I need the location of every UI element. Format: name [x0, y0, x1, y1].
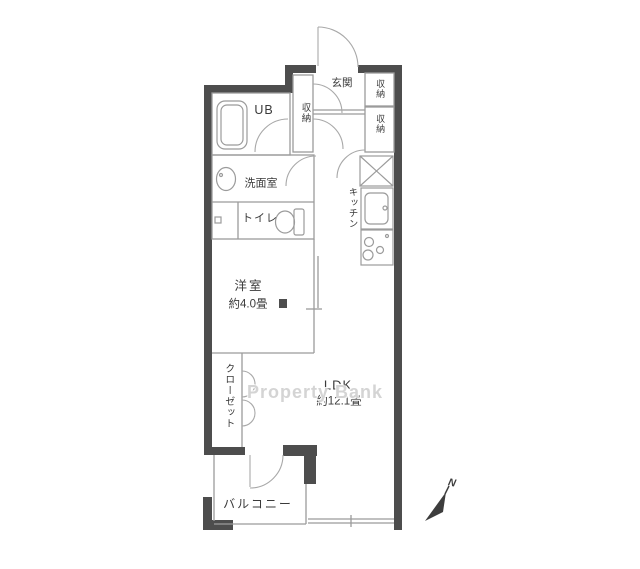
burner-icon-3: [377, 247, 384, 254]
floorplan-canvas: UB 収納 玄関 収納 収納 キッチン 洗面室 トイレ 洋室 約4.0畳 LDK…: [0, 0, 640, 569]
wall-bottom-left: [204, 447, 245, 455]
room-label-washroom: 洗面室: [245, 178, 278, 191]
room-label-hall-storage: 収納: [299, 103, 310, 124]
washbasin-icon: [217, 168, 236, 191]
room-label-storage-upper: 収納: [375, 79, 385, 99]
wall-right: [394, 65, 402, 530]
washbasin-tap-icon: [220, 174, 223, 177]
burner-icon-1: [365, 238, 374, 247]
room-label-entrance: 玄関: [332, 77, 353, 89]
entrance-door-arc: [318, 27, 358, 67]
pillar: [279, 299, 287, 308]
wall-balcony-bottom: [203, 520, 233, 530]
wall-connector: [285, 65, 293, 93]
unit-bath-room: [212, 93, 290, 155]
wall-left: [204, 85, 212, 455]
wall-bottom-center-v: [304, 445, 316, 484]
burner-icon-4: [386, 235, 389, 238]
kitchen-faucet-icon: [383, 206, 387, 210]
north-arrow-icon: [425, 486, 449, 521]
room-label-balcony: バルコニー: [223, 498, 293, 512]
toilet-tank-icon: [294, 209, 304, 235]
north-arrow-head: [425, 492, 446, 521]
unit-bath-door-arc: [255, 119, 288, 152]
wall-top-left-block: [204, 85, 293, 93]
bathtub-inner-icon: [221, 105, 243, 145]
room-size-western-room: 約4.0畳: [229, 298, 268, 311]
watermark-text: Property Bank: [247, 382, 383, 403]
room-label-storage-lower: 収納: [375, 114, 385, 134]
burner-icon-2: [363, 250, 373, 260]
fixtures: [215, 101, 393, 265]
toilet-bowl-icon: [276, 211, 295, 233]
balcony-door-arc: [250, 455, 283, 488]
washer-tap-icon: [215, 217, 221, 223]
door-arcs: [242, 27, 365, 488]
kitchen-sink-icon: [365, 193, 388, 224]
hall-door-arc: [313, 119, 343, 149]
corridor-door-arc: [337, 150, 365, 178]
room-label-western-room: 洋室: [234, 279, 263, 293]
room-label-kitchen: キッチン: [346, 187, 357, 229]
room-label-closet: クローゼット: [222, 363, 234, 429]
closet-folding-door-arc-2: [242, 400, 255, 426]
washroom-door-arc: [286, 156, 316, 186]
room-label-unit-bath: UB: [254, 103, 273, 117]
floorplan-drawing: [0, 0, 640, 569]
room-label-toilet: トイレ: [242, 213, 278, 226]
